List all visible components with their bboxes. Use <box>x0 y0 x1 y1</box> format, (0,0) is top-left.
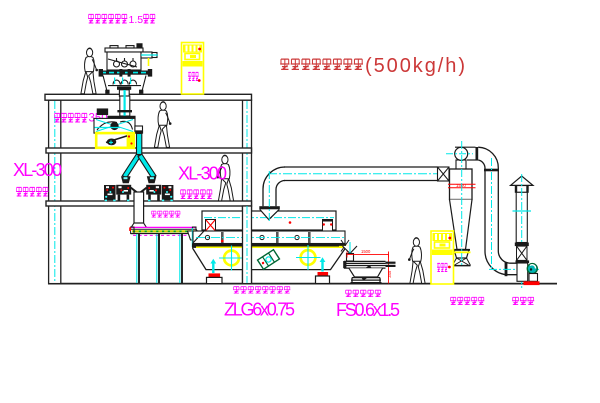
svg-text:1500: 1500 <box>456 183 466 188</box>
svg-text:345: 345 <box>387 270 392 278</box>
svg-text:XL-300: XL-300 <box>178 164 227 184</box>
svg-text:1500: 1500 <box>361 249 371 254</box>
svg-text:FS0.6x1.5: FS0.6x1.5 <box>336 300 400 320</box>
svg-text:1.5: 1.5 <box>129 14 144 26</box>
svg-text:(500kg/h): (500kg/h) <box>365 55 465 77</box>
svg-text:XL-300: XL-300 <box>13 160 62 180</box>
svg-text:ZLG6x0.75: ZLG6x0.75 <box>224 300 295 320</box>
